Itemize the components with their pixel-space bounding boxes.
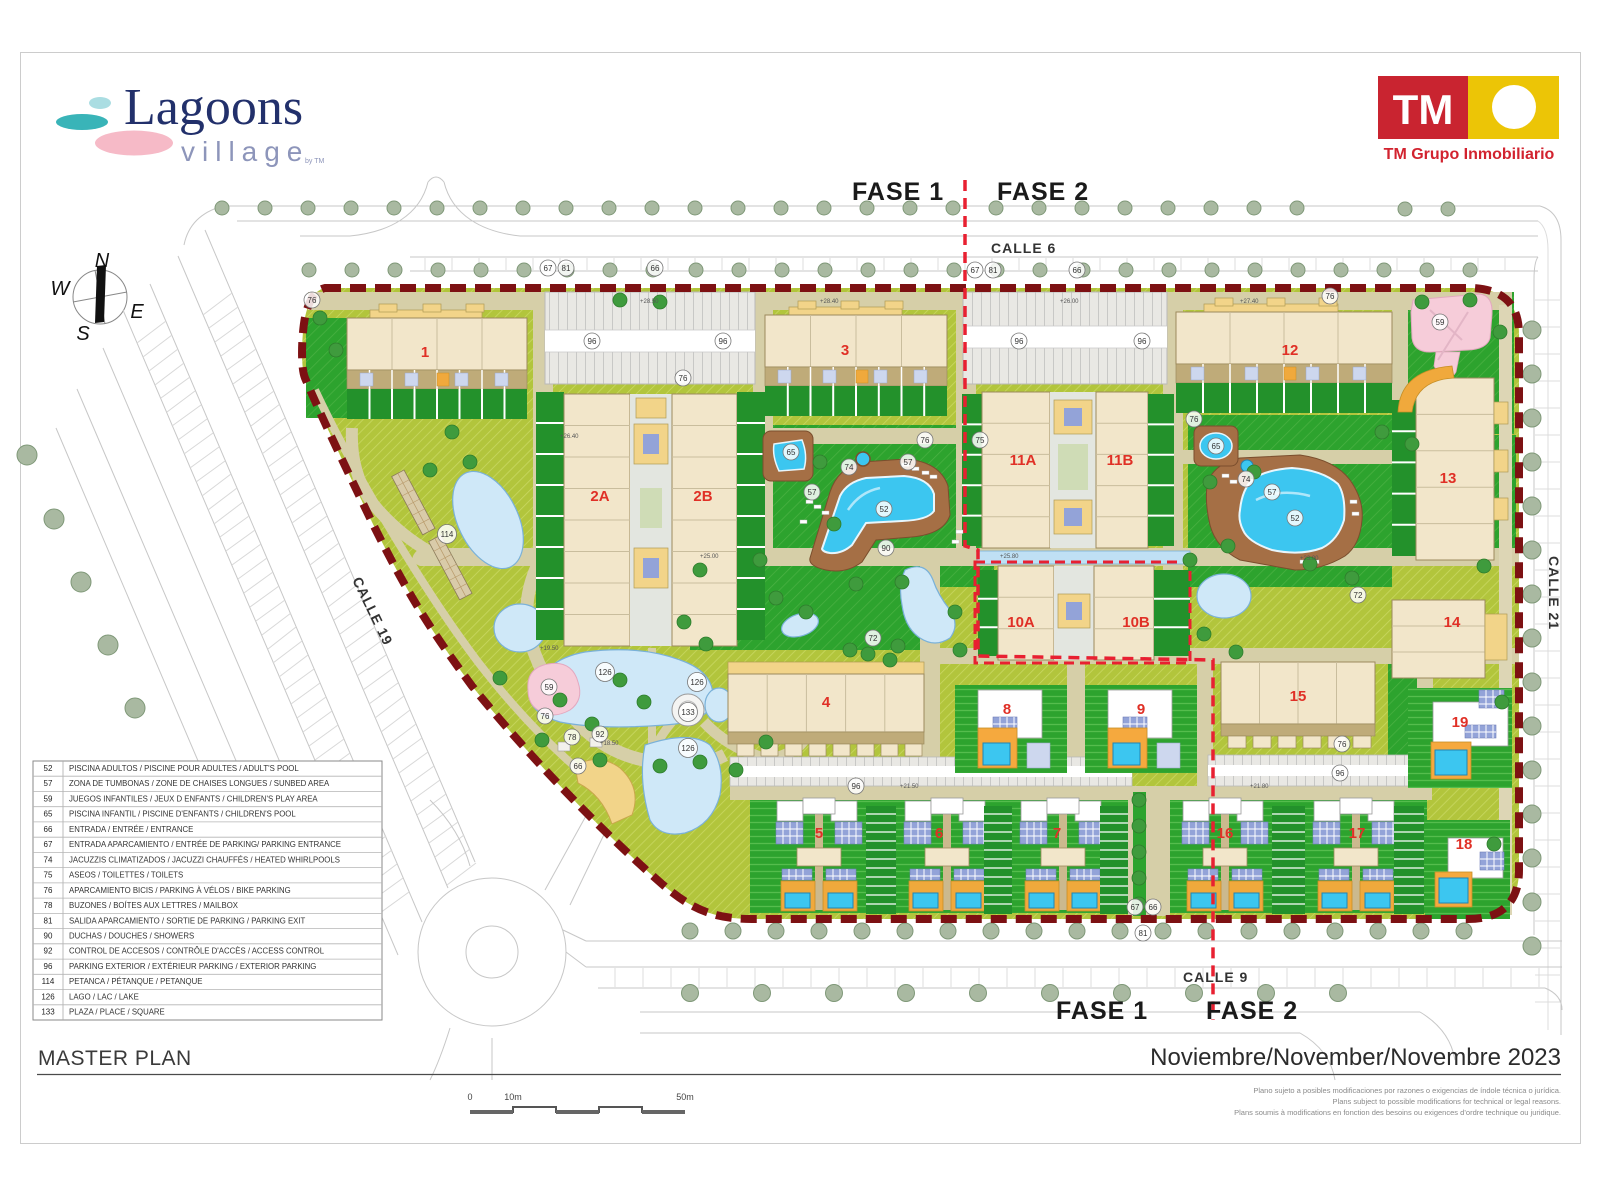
svg-text:90: 90 bbox=[882, 544, 891, 553]
svg-text:75: 75 bbox=[976, 436, 985, 445]
svg-text:MASTER PLAN: MASTER PLAN bbox=[38, 1047, 192, 1070]
svg-text:5: 5 bbox=[815, 825, 823, 842]
svg-text:10B: 10B bbox=[1122, 614, 1150, 631]
svg-text:CALLE 21: CALLE 21 bbox=[1546, 556, 1562, 630]
svg-text:ENTRADA / ENTRÉE / ENTRANCE: ENTRADA / ENTRÉE / ENTRANCE bbox=[69, 825, 193, 834]
svg-text:76: 76 bbox=[921, 436, 930, 445]
svg-text:PISCINA INFANTIL / PISCINE D'E: PISCINA INFANTIL / PISCINE D'ENFANTS / C… bbox=[69, 810, 296, 819]
svg-text:APARCAMIENTO BICIS / PARKING À: APARCAMIENTO BICIS / PARKING À VÉLOS / B… bbox=[69, 886, 291, 895]
svg-text:126: 126 bbox=[681, 744, 695, 753]
svg-text:Plans soumis à modifications e: Plans soumis à modifications en fonction… bbox=[1234, 1108, 1561, 1117]
svg-text:S: S bbox=[76, 323, 90, 345]
svg-text:+26.40: +26.40 bbox=[560, 434, 579, 440]
svg-text:133: 133 bbox=[681, 708, 695, 717]
svg-text:PLAZA / PLACE / SQUARE: PLAZA / PLACE / SQUARE bbox=[69, 1008, 165, 1017]
svg-text:15: 15 bbox=[1290, 688, 1307, 705]
svg-text:10A: 10A bbox=[1007, 614, 1035, 631]
svg-text:67: 67 bbox=[44, 840, 53, 849]
svg-text:13: 13 bbox=[1440, 470, 1457, 487]
svg-text:72: 72 bbox=[869, 634, 878, 643]
svg-text:2A: 2A bbox=[590, 488, 609, 505]
svg-text:74: 74 bbox=[845, 463, 854, 472]
svg-text:96: 96 bbox=[1138, 337, 1147, 346]
svg-text:96: 96 bbox=[1336, 769, 1345, 778]
svg-text:65: 65 bbox=[1212, 442, 1221, 451]
svg-text:JACUZZIS CLIMATIZADOS / JACUZZ: JACUZZIS CLIMATIZADOS / JACUZZI CHAUFFÉS… bbox=[69, 855, 340, 864]
svg-text:Noviembre/November/Novembre 20: Noviembre/November/Novembre 2023 bbox=[1150, 1044, 1561, 1071]
svg-text:52: 52 bbox=[1291, 514, 1300, 523]
svg-text:ENTRADA APARCAMIENTO / ENTRÉE: ENTRADA APARCAMIENTO / ENTRÉE DE PARKING… bbox=[69, 840, 341, 849]
svg-text:96: 96 bbox=[852, 782, 861, 791]
svg-text:81: 81 bbox=[562, 264, 571, 273]
svg-text:FASE 2: FASE 2 bbox=[997, 178, 1089, 206]
svg-text:67: 67 bbox=[544, 264, 553, 273]
svg-text:76: 76 bbox=[308, 296, 317, 305]
svg-text:14: 14 bbox=[1444, 614, 1461, 631]
svg-text:75: 75 bbox=[44, 871, 53, 880]
svg-text:+19.50: +19.50 bbox=[540, 646, 559, 652]
svg-text:96: 96 bbox=[588, 337, 597, 346]
svg-text:9: 9 bbox=[1137, 701, 1145, 718]
svg-text:67: 67 bbox=[971, 266, 980, 275]
svg-text:SALIDA APARCAMIENTO / SORTIE D: SALIDA APARCAMIENTO / SORTIE DE PARKING … bbox=[69, 916, 306, 925]
svg-text:126: 126 bbox=[41, 992, 55, 1001]
svg-text:57: 57 bbox=[44, 779, 53, 788]
svg-text:+18.50: +18.50 bbox=[600, 741, 619, 747]
svg-text:81: 81 bbox=[44, 916, 53, 925]
svg-text:92: 92 bbox=[44, 947, 53, 956]
svg-text:114: 114 bbox=[42, 977, 55, 986]
svg-text:78: 78 bbox=[568, 733, 577, 742]
svg-text:57: 57 bbox=[904, 458, 913, 467]
svg-text:+21.50: +21.50 bbox=[900, 784, 919, 790]
svg-text:+25.00: +25.00 bbox=[700, 554, 719, 560]
svg-text:66: 66 bbox=[1149, 903, 1158, 912]
svg-text:+23.00: +23.00 bbox=[1300, 556, 1319, 562]
svg-text:90: 90 bbox=[44, 932, 53, 941]
svg-text:76: 76 bbox=[541, 712, 550, 721]
svg-text:133: 133 bbox=[41, 1008, 55, 1017]
svg-text:126: 126 bbox=[690, 678, 704, 687]
svg-text:JUEGOS INFANTILES / JEUX D ENF: JUEGOS INFANTILES / JEUX D ENFANTS / CHI… bbox=[69, 794, 318, 803]
svg-text:TM: TM bbox=[1393, 86, 1454, 133]
svg-text:66: 66 bbox=[574, 762, 583, 771]
svg-text:BUZONES / BOÍTES AUX LETTRES /: BUZONES / BOÍTES AUX LETTRES / MAILBOX bbox=[69, 901, 239, 910]
svg-text:66: 66 bbox=[651, 264, 660, 273]
svg-text:+25.80: +25.80 bbox=[1000, 554, 1019, 560]
svg-text:52: 52 bbox=[880, 505, 889, 514]
svg-text:DUCHAS / DOUCHES / SHOWERS: DUCHAS / DOUCHES / SHOWERS bbox=[69, 932, 194, 941]
svg-text:12: 12 bbox=[1282, 342, 1299, 359]
svg-text:96: 96 bbox=[44, 962, 53, 971]
svg-text:4: 4 bbox=[822, 694, 831, 711]
svg-text:11B: 11B bbox=[1107, 452, 1134, 469]
svg-text:Plans subject to possible modi: Plans subject to possible modifications … bbox=[1333, 1097, 1561, 1106]
svg-text:Lagoons: Lagoons bbox=[124, 79, 303, 136]
svg-text:Plano sujeto a posibles modifi: Plano sujeto a posibles modificaciones p… bbox=[1253, 1086, 1561, 1095]
svg-text:FASE 2: FASE 2 bbox=[1206, 997, 1298, 1025]
svg-text:59: 59 bbox=[44, 794, 53, 803]
svg-text:81: 81 bbox=[989, 266, 998, 275]
svg-text:by TM: by TM bbox=[305, 158, 324, 165]
svg-text:52: 52 bbox=[44, 764, 53, 773]
svg-text:ZONA DE TUMBONAS / ZONE DE CHA: ZONA DE TUMBONAS / ZONE DE CHAISES LONGU… bbox=[69, 779, 330, 788]
svg-text:+28.40: +28.40 bbox=[820, 299, 839, 305]
svg-text:67: 67 bbox=[1131, 903, 1140, 912]
svg-text:3: 3 bbox=[841, 342, 849, 359]
svg-text:76: 76 bbox=[1326, 292, 1335, 301]
svg-text:FASE 1: FASE 1 bbox=[852, 178, 944, 206]
svg-text:FASE 1: FASE 1 bbox=[1056, 997, 1148, 1025]
svg-text:6: 6 bbox=[935, 825, 943, 842]
svg-text:16: 16 bbox=[1217, 825, 1234, 842]
svg-text:2B: 2B bbox=[693, 488, 712, 505]
svg-text:8: 8 bbox=[1003, 701, 1011, 718]
svg-text:65: 65 bbox=[787, 448, 796, 457]
svg-text:TM Grupo Inmobiliario: TM Grupo Inmobiliario bbox=[1384, 146, 1555, 163]
svg-text:96: 96 bbox=[719, 337, 728, 346]
svg-text:96: 96 bbox=[1015, 337, 1024, 346]
svg-text:+26.00: +26.00 bbox=[1060, 299, 1079, 305]
svg-text:CALLE 9: CALLE 9 bbox=[1183, 969, 1248, 985]
svg-text:76: 76 bbox=[44, 886, 53, 895]
svg-text:76: 76 bbox=[1338, 740, 1347, 749]
svg-text:PISCINA ADULTOS / PISCINE POU: PISCINA ADULTOS / PISCINE POUR ADULTES /… bbox=[69, 764, 299, 773]
svg-text:59: 59 bbox=[545, 683, 554, 692]
svg-text:LAGO / LAC / LAKE: LAGO / LAC / LAKE bbox=[69, 992, 139, 1001]
svg-text:10m: 10m bbox=[504, 1092, 522, 1102]
svg-text:19: 19 bbox=[1452, 714, 1469, 731]
svg-text:PARKING EXTERIOR / EXTÉRIEUR P: PARKING EXTERIOR / EXTÉRIEUR PARKING / E… bbox=[69, 962, 316, 971]
svg-text:81: 81 bbox=[1139, 929, 1148, 938]
svg-text:114: 114 bbox=[441, 530, 454, 539]
svg-text:E: E bbox=[130, 301, 144, 323]
svg-text:+21.80: +21.80 bbox=[1250, 784, 1269, 790]
svg-text:76: 76 bbox=[679, 374, 688, 383]
svg-text:72: 72 bbox=[1354, 591, 1363, 600]
svg-text:+28.50: +28.50 bbox=[640, 299, 659, 305]
svg-text:57: 57 bbox=[808, 488, 817, 497]
svg-text:village: village bbox=[181, 136, 309, 167]
svg-text:66: 66 bbox=[44, 825, 53, 834]
svg-text:CONTROL DE ACCESOS / CONTRÔLE: CONTROL DE ACCESOS / CONTRÔLE D'ACCÈS / … bbox=[69, 947, 325, 956]
svg-text:11A: 11A bbox=[1010, 452, 1037, 469]
svg-text:66: 66 bbox=[1073, 266, 1082, 275]
svg-text:57: 57 bbox=[1268, 488, 1277, 497]
svg-text:N: N bbox=[95, 250, 110, 272]
svg-text:65: 65 bbox=[44, 810, 53, 819]
svg-text:76: 76 bbox=[1190, 415, 1199, 424]
svg-text:126: 126 bbox=[598, 668, 612, 677]
svg-text:92: 92 bbox=[596, 730, 605, 739]
svg-text:59: 59 bbox=[1436, 318, 1445, 327]
svg-text:0: 0 bbox=[467, 1092, 472, 1102]
svg-text:17: 17 bbox=[1349, 825, 1366, 842]
svg-text:50m: 50m bbox=[676, 1092, 694, 1102]
svg-text:7: 7 bbox=[1053, 825, 1061, 842]
svg-text:74: 74 bbox=[1242, 475, 1251, 484]
svg-text:PETANCA / PÉTANQUE / PETANQUE: PETANCA / PÉTANQUE / PETANQUE bbox=[69, 977, 202, 986]
svg-text:74: 74 bbox=[44, 855, 53, 864]
svg-text:18: 18 bbox=[1456, 836, 1473, 853]
svg-text:W: W bbox=[51, 278, 72, 300]
svg-text:78: 78 bbox=[44, 901, 53, 910]
svg-text:+27.40: +27.40 bbox=[1240, 299, 1259, 305]
svg-text:CALLE 6: CALLE 6 bbox=[991, 240, 1056, 256]
svg-text:1: 1 bbox=[421, 344, 429, 361]
svg-text:ASEOS / TOILETTES / TOILETS: ASEOS / TOILETTES / TOILETS bbox=[69, 871, 183, 880]
